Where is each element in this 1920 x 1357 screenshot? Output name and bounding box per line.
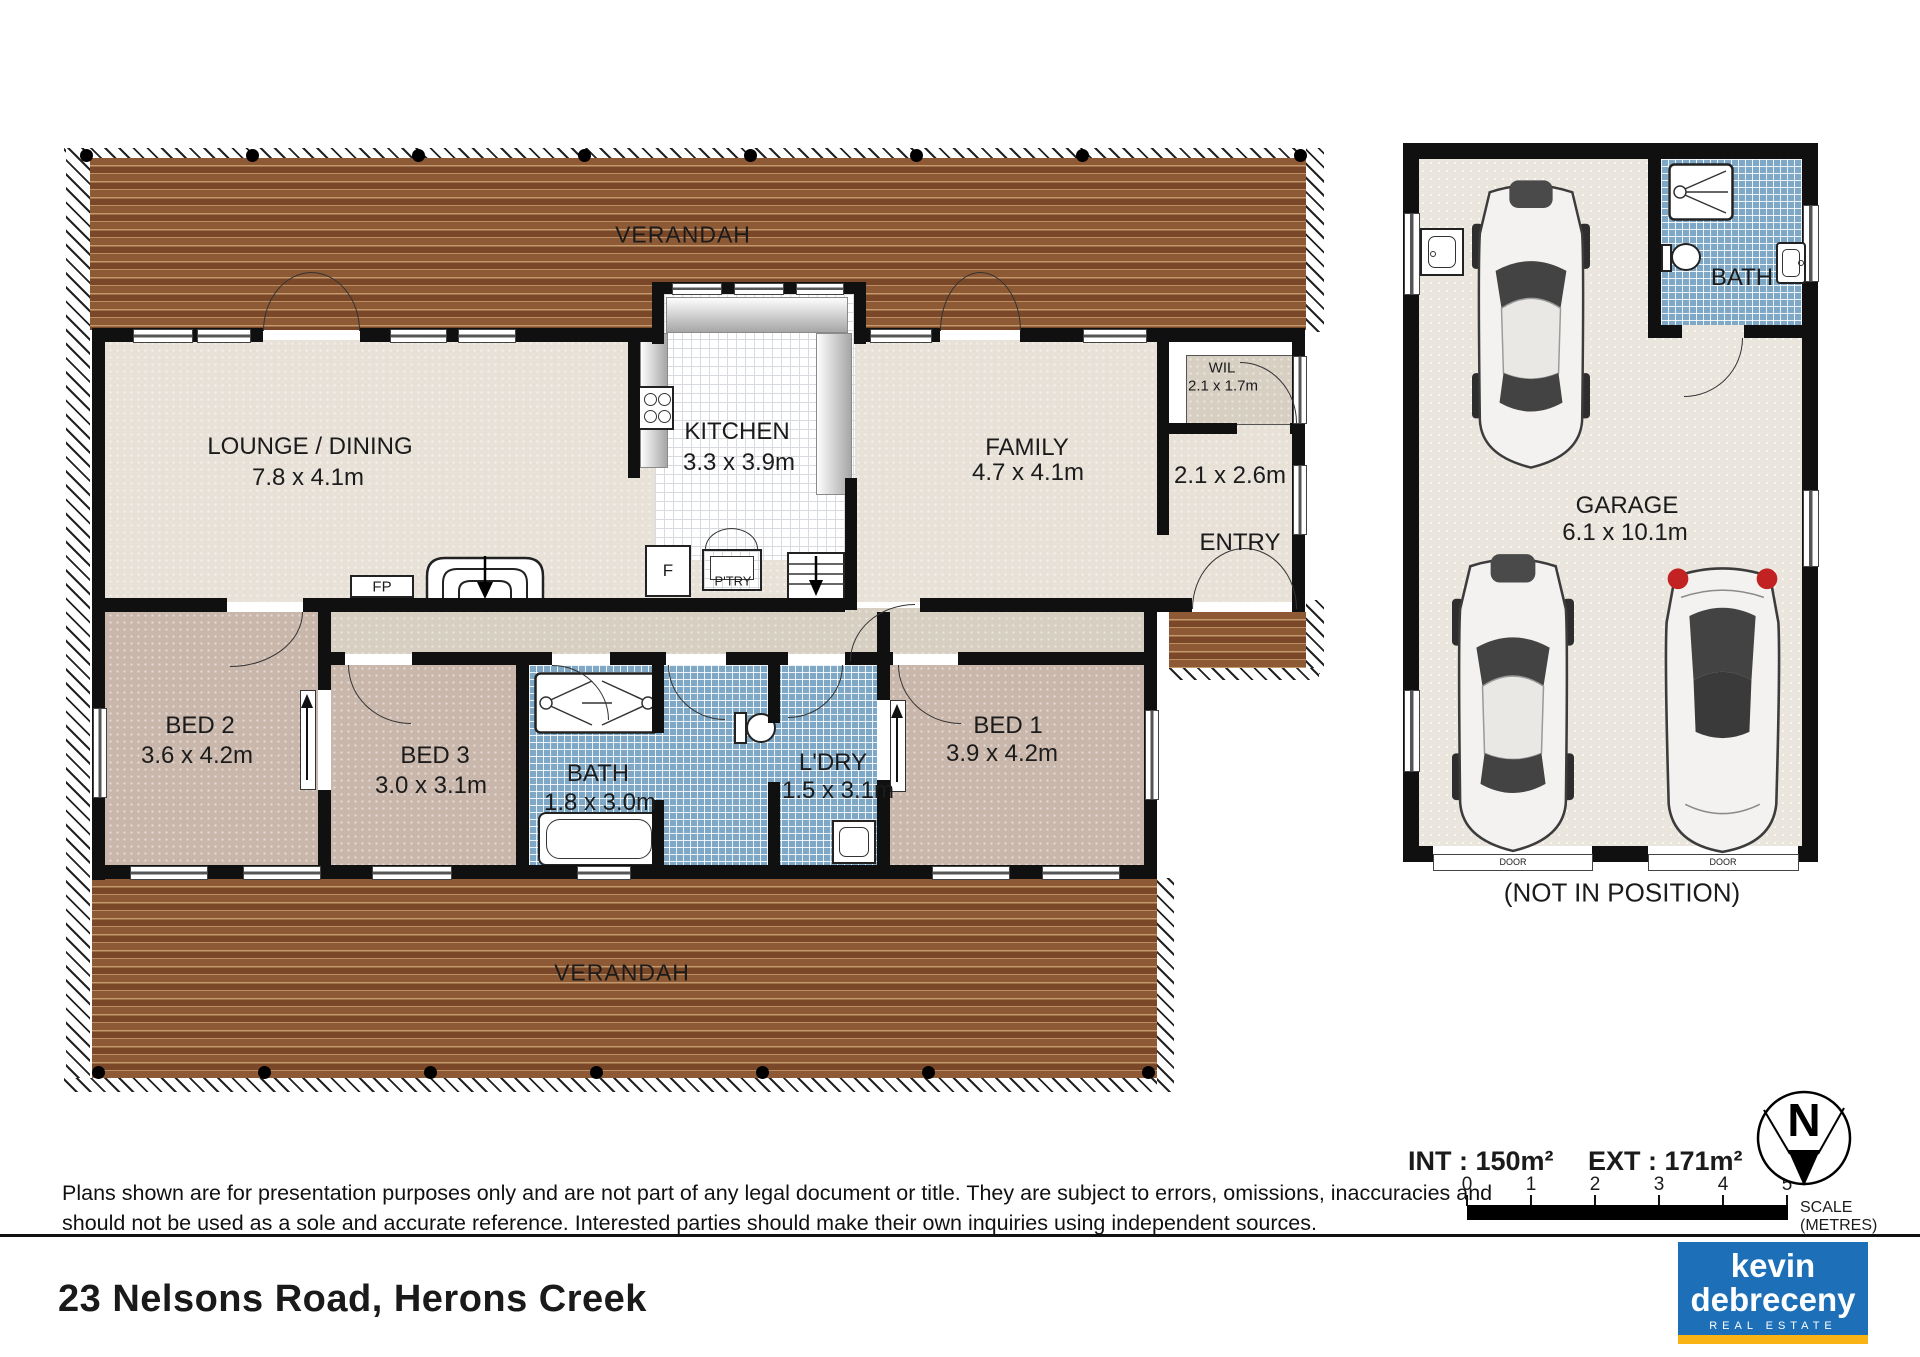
bed2-floor [100,612,318,868]
wall [845,478,857,610]
bed1-dims: 3.9 x 4.2m [946,740,1058,768]
wall [652,665,664,733]
wall [318,790,331,870]
wall [1290,423,1305,434]
internal-steps-icon [787,552,845,600]
garage-dims: 6.1 x 10.1m [1562,519,1687,547]
bed3-label: BED 3 [400,742,469,770]
lounge-dims: 7.8 x 4.1m [252,464,364,492]
car-top-view-icon [1452,545,1574,860]
window [1042,866,1120,880]
hatch-border-bottom-right [1157,878,1174,1092]
agency-logo-line2: debreceny [1678,1283,1868,1317]
floorplan-page: DOOR DOOR VERANDAH VERANDAH LOUNGE / DIN… [0,0,1920,1357]
wall [610,652,666,665]
laundry-label: L'DRY [799,749,867,777]
verandah-bottom-label: VERANDAH [554,960,690,987]
garage-basin [1776,242,1806,284]
window [1404,213,1420,295]
bath-label: BATH [567,760,629,788]
scale-tick-label: 3 [1654,1174,1665,1196]
laundry-tub [832,820,876,864]
window [372,866,452,880]
verandah-post [910,149,923,162]
verandah-post [92,1066,105,1079]
window [932,866,1010,880]
kitchen-dims: 3.3 x 3.9m [683,449,795,477]
verandah-top-label: VERANDAH [615,222,751,249]
wall [318,612,331,690]
garage-note: (NOT IN POSITION) [1504,878,1740,909]
scale-tick-label: 4 [1718,1174,1729,1196]
verandah-post [922,1066,935,1079]
wall [768,782,780,868]
wall [1157,423,1237,434]
ext-area: EXT : 171m² [1588,1146,1743,1177]
window [1404,690,1420,772]
window [93,708,107,798]
entry-porch-steps [1169,612,1306,668]
verandah-post [578,149,591,162]
wall [1798,846,1818,862]
verandah-post [590,1066,603,1079]
wall [1296,598,1305,612]
window [672,283,722,295]
footer-divider [0,1234,1920,1237]
wall [854,282,866,344]
family-label: FAMILY [985,434,1069,462]
robe-arrow-icon [301,694,313,784]
bed2-dims: 3.6 x 4.2m [141,742,253,770]
svg-text:N: N [1787,1094,1820,1146]
kitchen-counter-top [666,297,848,333]
wall [1403,143,1818,159]
window [133,329,193,343]
fireplace-icon [425,556,545,602]
agency-logo-line3: REAL ESTATE [1678,1320,1868,1332]
verandah-post [1142,1066,1155,1079]
window [734,283,784,295]
hatch-border-porch-right [1306,600,1324,674]
wall [628,330,640,478]
bed3-dims: 3.0 x 3.1m [375,772,487,800]
lounge-label: LOUNGE / DINING [207,433,412,461]
wall [92,598,227,612]
cooktop [638,386,674,430]
window [1145,710,1159,800]
wil-label: WIL [1209,360,1236,377]
wall [1744,325,1808,338]
entry-dims: 2.1 x 2.6m [1174,462,1286,490]
kitchen-counter-right [816,333,852,495]
fridge-label: F [663,561,673,581]
entry-label: ENTRY [1200,529,1281,557]
wall [303,598,845,612]
scale-units-label: SCALE (METRES) [1800,1199,1920,1235]
robe-arrow-icon [891,704,903,786]
garage-label: GARAGE [1576,492,1679,520]
wall [726,652,788,665]
wall [1403,846,1433,862]
window [796,283,844,295]
garage-toilet-bowl [1671,243,1701,271]
garage-bath-label: BATH [1711,264,1773,292]
car-top-view-icon [1472,168,1590,480]
verandah-post [412,149,425,162]
bed1-label: BED 1 [973,712,1042,740]
wall [1648,159,1661,338]
wall [412,652,552,665]
family-dims: 4.7 x 4.1m [972,459,1084,487]
int-area: INT : 150m² [1408,1146,1554,1177]
scale-tick-label: 1 [1526,1174,1537,1196]
hatch-border-porch-bottom [1169,668,1319,680]
garage-door-label: DOOR [1710,857,1737,867]
verandah-post [424,1066,437,1079]
verandah-post [1294,149,1307,162]
agency-logo: kevin debreceny REAL ESTATE [1678,1242,1868,1335]
pantry-label: P'TRY [715,574,752,589]
agency-logo-accent-bar [1678,1335,1868,1344]
scale-tick-label: 2 [1590,1174,1601,1196]
disclaimer-line-1: Plans shown are for presentation purpose… [62,1178,1492,1208]
north-compass-icon: N [1752,1086,1856,1190]
wall [331,652,345,665]
wil-dims: 2.1 x 1.7m [1188,378,1258,395]
window [458,329,516,343]
wall [1592,846,1648,862]
wall [768,665,780,723]
wall [1648,325,1682,338]
bed2-label: BED 2 [165,712,234,740]
wall [652,282,664,344]
verandah-post [1076,149,1089,162]
hatch-border-left [66,148,90,1092]
lounge-floor [100,340,656,602]
window [130,866,208,880]
window [1293,465,1307,535]
wall [958,652,1144,665]
window [1803,490,1819,567]
garage-laundry-tub [1420,228,1464,276]
bath-dims: 1.8 x 3.0m [544,789,656,817]
window [577,866,631,880]
window [390,329,447,343]
verandah-post [756,1066,769,1079]
property-address: 23 Nelsons Road, Herons Creek [58,1278,647,1321]
window [197,329,251,343]
hatch-border-top-right [1306,148,1324,332]
window [870,329,932,343]
verandah-post [246,149,259,162]
hallway-floor [331,608,1144,654]
hatch-border-bottom [64,1078,1174,1092]
agency-logo-line1: kevin [1678,1249,1868,1283]
laundry-dims: 1.5 x 3.1m [782,777,894,805]
verandah-post [744,149,757,162]
scale-bar [1467,1205,1788,1220]
window [243,866,321,880]
garage-shower-icon [1668,163,1734,221]
kitchen-label: KITCHEN [684,418,789,446]
bathtub [538,812,660,866]
sports-car-top-view-icon [1660,556,1785,856]
wall [516,665,529,868]
verandah-post [80,149,93,162]
fireplace-label: FP [372,579,391,596]
window [1083,329,1147,343]
verandah-post [258,1066,271,1079]
